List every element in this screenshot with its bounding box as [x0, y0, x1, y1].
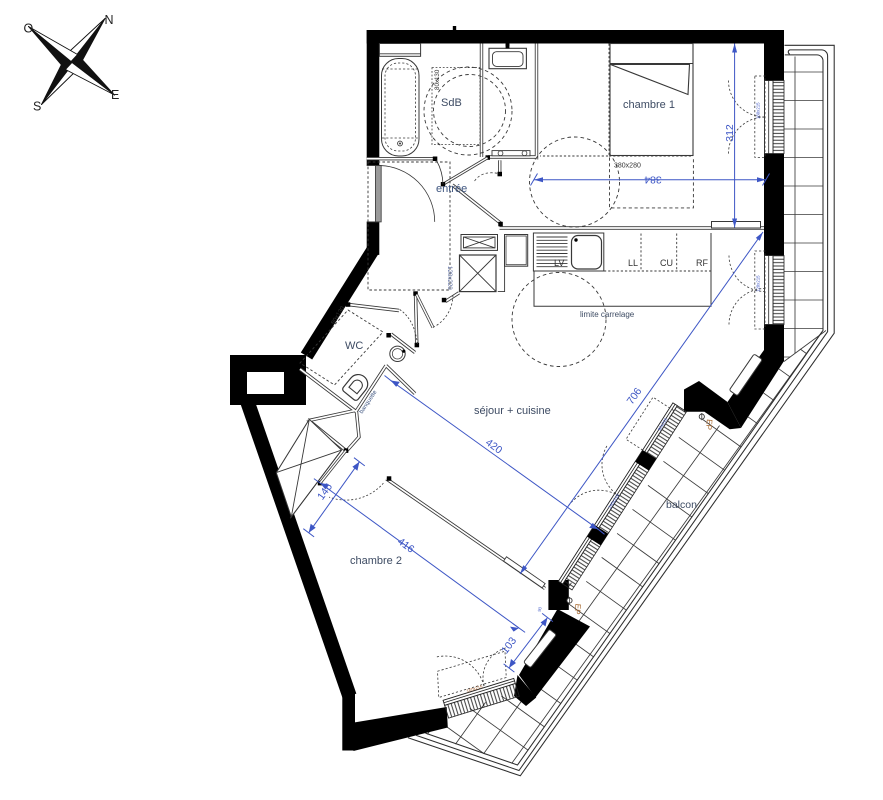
svg-text:O: O: [24, 22, 34, 36]
svg-text:S: S: [33, 100, 41, 114]
svg-text:80x130: 80x130: [434, 69, 441, 90]
svg-text:limite carrelage: limite carrelage: [580, 310, 635, 319]
svg-text:WC: WC: [345, 340, 363, 352]
svg-text:CU: CU: [660, 258, 673, 268]
svg-text:LV: LV: [554, 258, 564, 268]
svg-text:chambre 2: chambre 2: [350, 555, 402, 567]
svg-text:séjour + cuisine: séjour + cuisine: [474, 405, 551, 417]
svg-text:120x220: 120x220: [446, 266, 453, 290]
svg-text:380x280: 380x280: [614, 163, 641, 170]
svg-text:E: E: [111, 88, 119, 102]
svg-text:120x215: 120x215: [756, 275, 761, 292]
svg-text:312: 312: [724, 124, 736, 142]
svg-text:RF: RF: [696, 258, 708, 268]
svg-text:384: 384: [644, 174, 662, 186]
svg-text:N: N: [105, 13, 114, 27]
svg-text:chambre 1: chambre 1: [623, 99, 675, 111]
svg-text:160x215: 160x215: [756, 102, 761, 119]
svg-text:EP: EP: [704, 419, 714, 430]
svg-text:EP: EP: [573, 603, 583, 614]
svg-text:balcon: balcon: [666, 499, 697, 511]
svg-text:entrée: entrée: [436, 183, 467, 195]
svg-text:SdB: SdB: [441, 97, 462, 109]
svg-text:LL: LL: [628, 258, 638, 268]
